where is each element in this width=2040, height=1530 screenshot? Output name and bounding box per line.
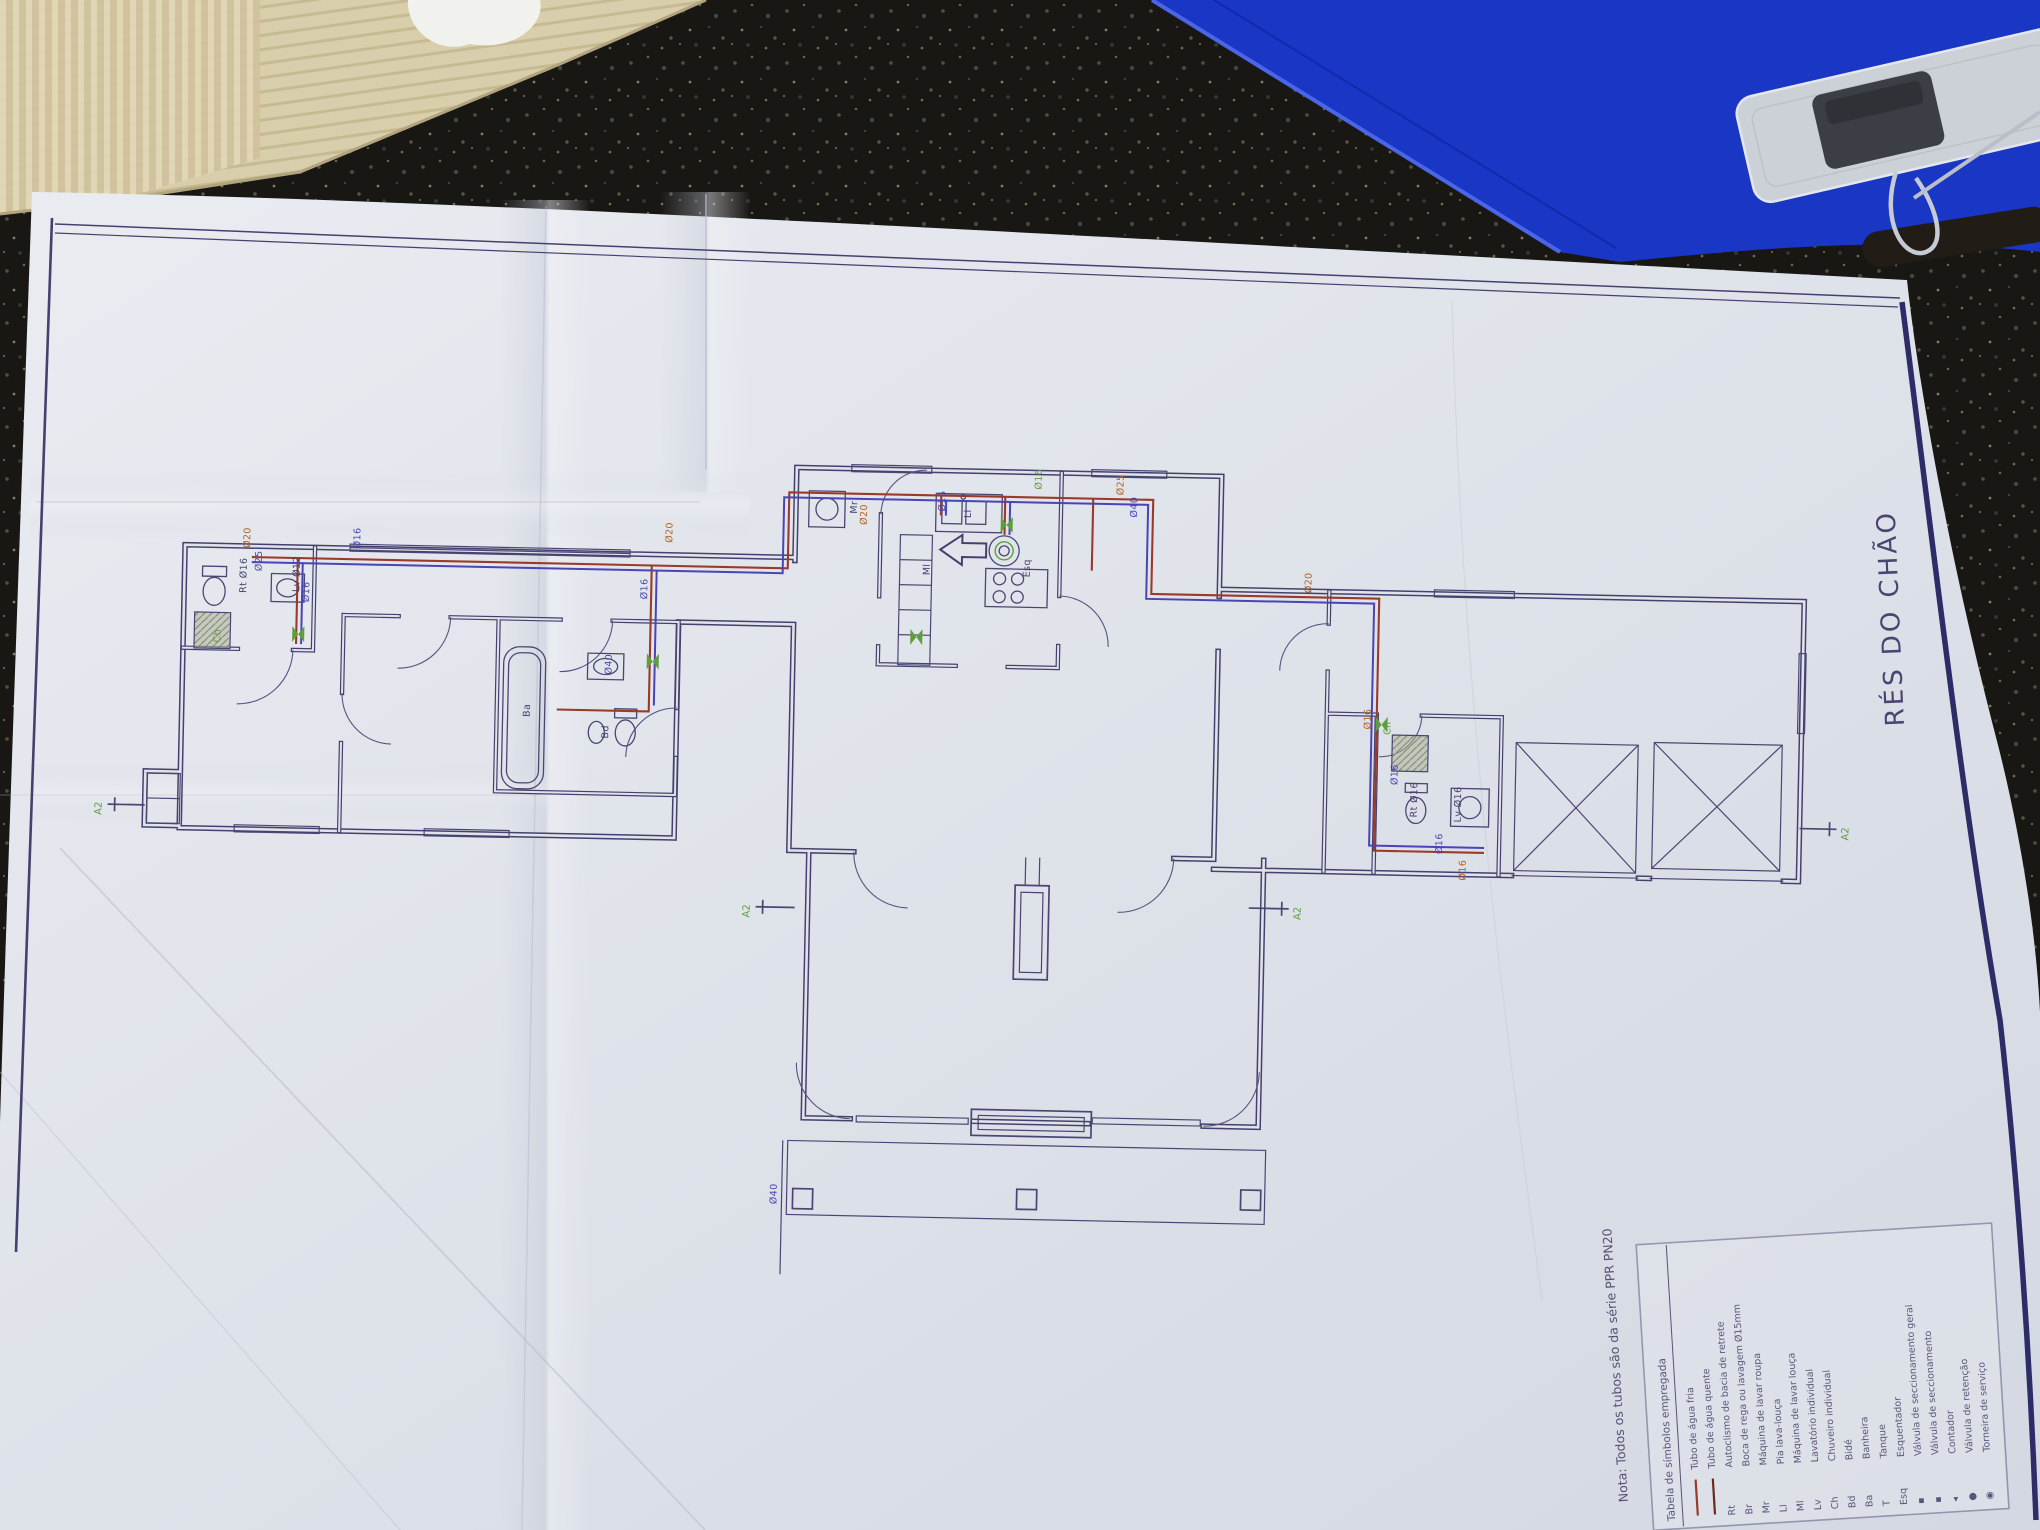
legend-row-label: Bidé	[1843, 1439, 1855, 1461]
legend-row-symbol: ◉	[1984, 1491, 1995, 1500]
fixture-label-lv: Lv Ø12	[291, 556, 303, 592]
legend-row-symbol: Ba	[1864, 1494, 1876, 1507]
legend-row-symbol: Ll	[1778, 1504, 1789, 1513]
fixture-label-ch: Ch	[212, 629, 223, 643]
svg-text:A2: A2	[741, 904, 752, 917]
fixture-label-ml: Ml	[922, 563, 933, 575]
pipe-label-o16: Ø16	[301, 581, 312, 602]
pipe-label-o16: Ø16	[1362, 709, 1373, 730]
legend-row-symbol: Rt	[1727, 1504, 1739, 1515]
fixture-label-ll: Ll	[963, 509, 974, 518]
pipe-label-o40: Ø40	[1129, 497, 1140, 518]
legend-row-label: Tanque	[1877, 1424, 1890, 1460]
legend-row-symbol: ▪	[1916, 1497, 1927, 1504]
pipe-label-o20: Ø20	[1303, 572, 1314, 593]
legend-row-symbol: ●	[1967, 1492, 1978, 1501]
pipe-label-o16: Ø16	[639, 578, 650, 599]
fixture-label-bd: Bd	[600, 725, 611, 739]
svg-text:A2: A2	[1840, 827, 1851, 840]
fixture-label-ba: Ba	[522, 704, 533, 717]
pipe-label-o16: Ø16	[1434, 833, 1445, 854]
pipe-label-o25: Ø25	[1115, 474, 1126, 495]
pipe-label-o20: Ø20	[242, 527, 253, 548]
svg-text:A2: A2	[93, 802, 104, 815]
pipe-label-o20: Ø20	[664, 522, 675, 543]
fixture-label-mr: Mr	[849, 501, 860, 514]
legend-box: Tabela de símbolos empregada Tubo de águ…	[1636, 1223, 2009, 1530]
pipe-label-o20: Ø20	[859, 504, 870, 525]
pipe-label-o25: Ø25	[254, 550, 265, 571]
legend-row-symbol: T	[1881, 1500, 1892, 1508]
svg-text:A2: A2	[1292, 907, 1303, 920]
legend-row-symbol: Ch	[1830, 1496, 1842, 1509]
drain-label-o40: Ø40	[768, 1183, 779, 1204]
legend-row-symbol: Mr	[1761, 1501, 1773, 1514]
scene-canvas: Ø20 Ø25 Ø16 Ø16 Ø20 Ø16 Ø40 Ø20 Ø16 Ø16 …	[0, 0, 2040, 1530]
pipe-label-o40: Ø40	[603, 654, 614, 675]
fixture-label-lv: Lv Ø16	[1453, 786, 1465, 822]
legend-row-symbol: Bd	[1847, 1495, 1859, 1508]
photo-of-floor-plan: Ø20 Ø25 Ø16 Ø16 Ø20 Ø16 Ø40 Ø20 Ø16 Ø16 …	[0, 0, 2040, 1530]
fixture-label-rt: Rt Ø16	[238, 558, 250, 594]
legend-row-symbol: ▪	[1933, 1496, 1944, 1503]
fixture-label-rt: Rt Ø16	[1409, 782, 1421, 818]
pipe-label-o16: Ø16	[1457, 860, 1468, 881]
legend-row-symbol: ◂	[1950, 1496, 1961, 1502]
fixture-label-esq: Esq	[1022, 559, 1033, 577]
fixture-label-ch: Ch	[1382, 721, 1393, 735]
pipe-label-o16: Ø16	[1033, 469, 1044, 490]
pipe-label-o16: Ø16	[1389, 764, 1400, 785]
pipe-label-o16: Ø16	[937, 491, 948, 512]
legend-row-symbol: Lv	[1812, 1499, 1824, 1511]
legend-row-symbol: Ml	[1795, 1500, 1807, 1511]
legend-row-symbol: Esq	[1898, 1488, 1910, 1506]
pipe-label-o16: Ø16	[352, 527, 363, 548]
legend-row-symbol: Br	[1744, 1504, 1756, 1515]
